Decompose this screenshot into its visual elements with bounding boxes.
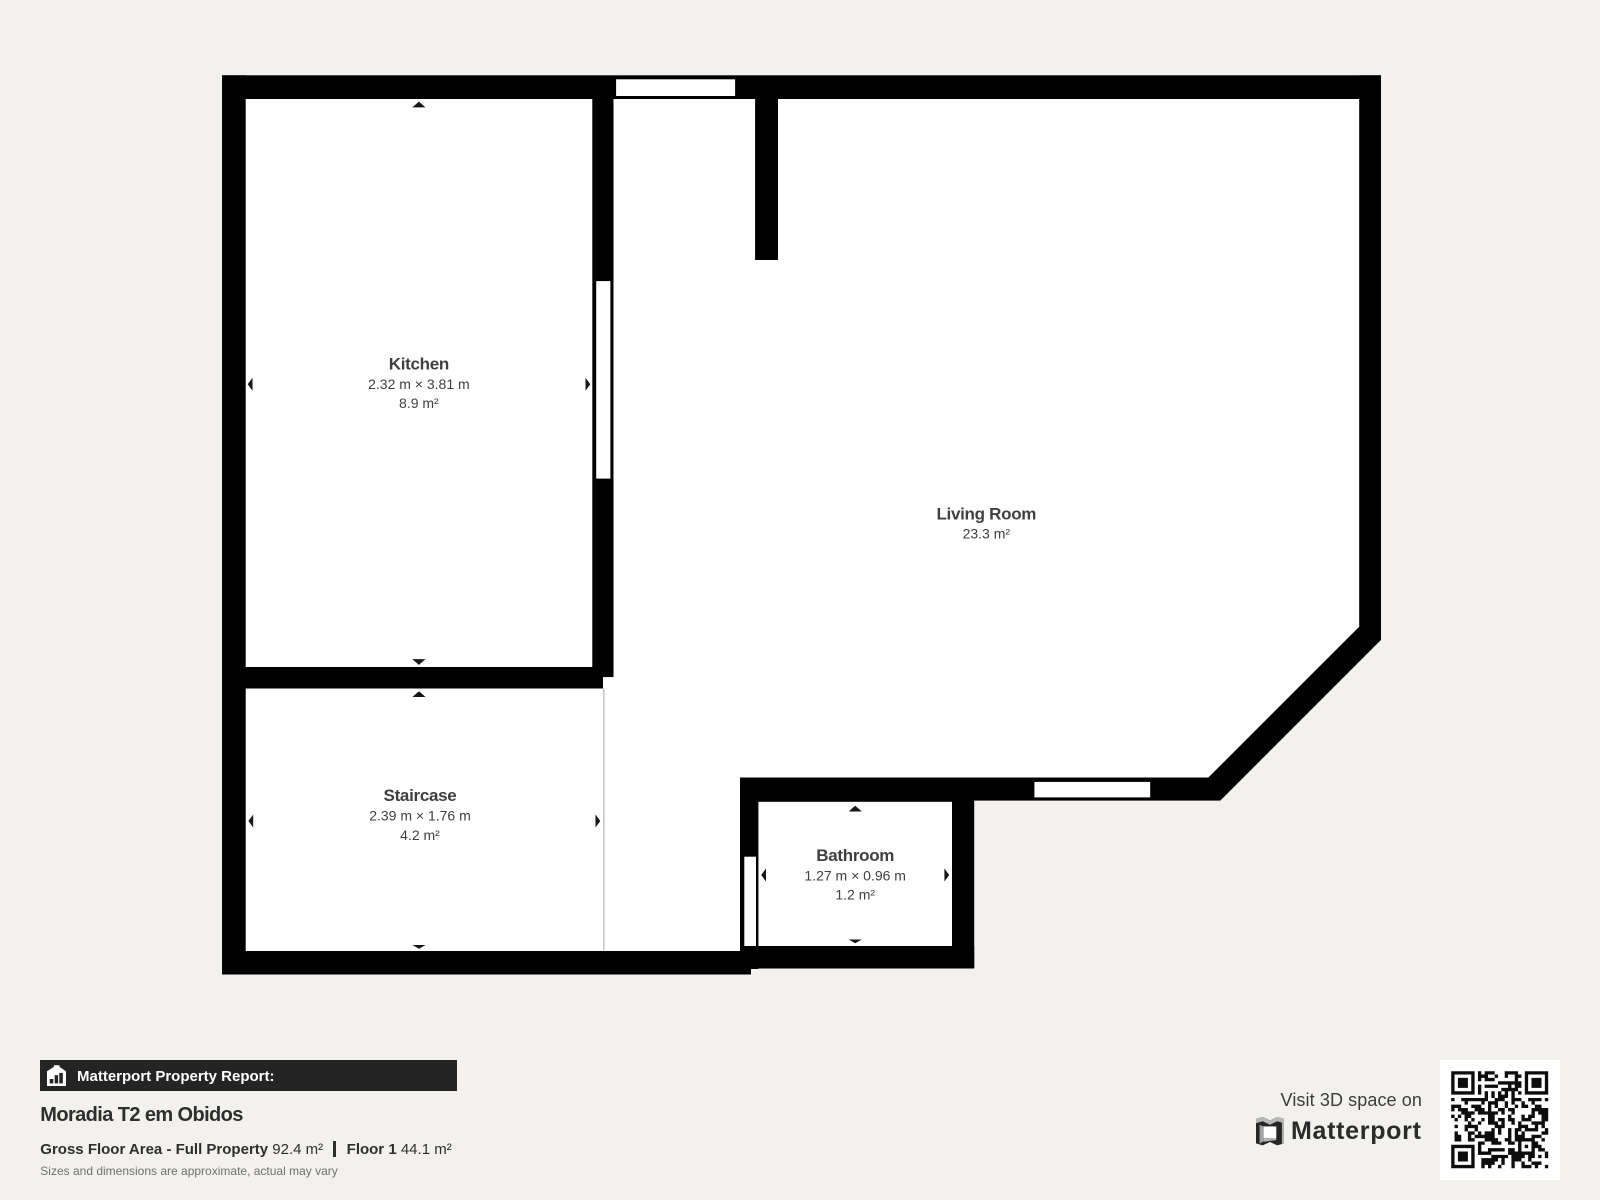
svg-text:1.2 m²: 1.2 m² [835,887,875,903]
svg-text:2.32 m × 3.81 m: 2.32 m × 3.81 m [368,376,470,392]
svg-text:Living Room: Living Room [936,505,1036,524]
svg-text:23.3 m²: 23.3 m² [963,526,1011,542]
svg-text:Bathroom: Bathroom [816,846,894,865]
svg-text:1.27 m × 0.96 m: 1.27 m × 0.96 m [804,867,906,883]
svg-text:Kitchen: Kitchen [389,355,449,374]
svg-text:Staircase: Staircase [384,786,457,805]
svg-text:4.2 m²: 4.2 m² [400,827,440,843]
svg-text:2.39 m × 1.76 m: 2.39 m × 1.76 m [369,808,471,824]
svg-text:8.9 m²: 8.9 m² [399,395,439,411]
